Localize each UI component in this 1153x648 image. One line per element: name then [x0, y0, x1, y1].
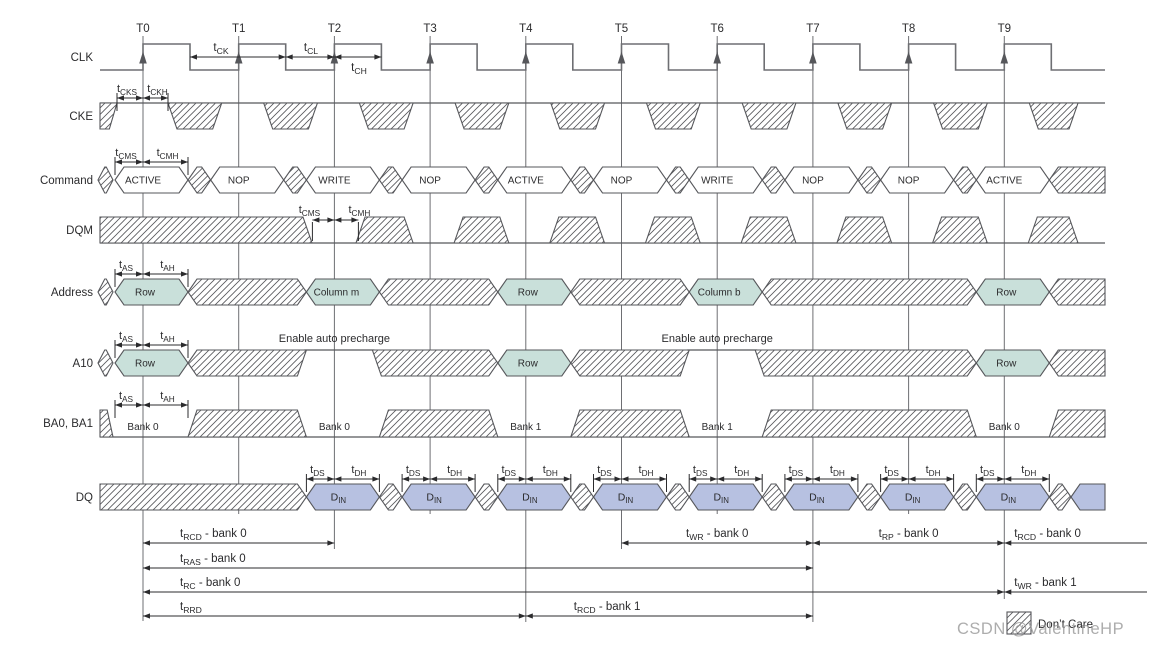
- interval-label: tWR - bank 1: [1014, 577, 1076, 591]
- sdram-write-timing-diagram: T0T1T2T3T4T5T6T7T8T9tCKtCLtCHCLKtCKStCKH…: [0, 0, 1153, 648]
- command-value: NOP: [419, 176, 441, 187]
- interval-label: tRP - bank 0: [879, 528, 939, 542]
- timing-label: tCH: [351, 62, 367, 76]
- a10-value: Row: [135, 359, 156, 370]
- signal-label-address: Address: [51, 287, 93, 299]
- hold-time-label: tAH: [160, 330, 175, 344]
- clock-tick-label: T4: [519, 23, 533, 35]
- hold-time-label: tDH: [734, 464, 749, 478]
- clock-tick-label: T7: [806, 23, 819, 35]
- hold-time-label: tAH: [160, 390, 175, 404]
- setup-time-label: tCMS: [299, 204, 321, 218]
- clock-edge-arrow: [713, 52, 721, 64]
- signal-label-a10: A10: [73, 358, 93, 370]
- clock-tick-labels: T0T1T2T3T4T5T6T7T8T9: [136, 23, 1011, 35]
- auto-precharge-note: Enable auto precharge: [662, 333, 773, 345]
- setup-time-label: tDS: [502, 464, 517, 478]
- setup-time-label: tDS: [980, 464, 995, 478]
- address-value: Row: [996, 288, 1017, 299]
- clock-edge-arrow: [1001, 52, 1009, 64]
- interval-label: tRCD - bank 0: [1014, 528, 1081, 542]
- signal-label-command: Command: [40, 175, 93, 187]
- setup-time-label: tAS: [119, 330, 134, 344]
- timing-label: tCL: [304, 42, 318, 56]
- signal-label-dqm: DQM: [66, 225, 93, 237]
- bank-value: Bank 0: [127, 422, 159, 433]
- clock-tick-label: T1: [232, 23, 245, 35]
- bottom-timing-annotations: tRCD - bank 0tRAS - bank 0tRC - bank 0tR…: [143, 528, 1147, 619]
- setup-time-label: tCKS: [117, 83, 138, 97]
- clock-tick-label: T6: [710, 23, 723, 35]
- hold-time-label: tDH: [543, 464, 558, 478]
- signal-row-a10: RowRowRowEnable auto prechargeEnable aut…: [73, 330, 1105, 376]
- hold-time-label: tDH: [830, 464, 845, 478]
- clock-tick-label: T8: [902, 23, 915, 35]
- setup-time-label: tDS: [310, 464, 325, 478]
- interval-label: tRAS - bank 0: [180, 553, 246, 567]
- signal-row-ba: Bank 0Bank 0Bank 1Bank 1Bank 0tAStAHBA0,…: [43, 390, 1105, 437]
- auto-precharge-note: Enable auto precharge: [279, 333, 390, 345]
- command-value: WRITE: [318, 176, 351, 187]
- bank-value: Bank 1: [510, 422, 542, 433]
- command-value: ACTIVE: [125, 176, 161, 187]
- signal-row-dqm: tCMStCMHDQM: [66, 204, 1105, 243]
- clock-edge-arrow: [522, 52, 530, 64]
- a10-value: Row: [518, 359, 539, 370]
- interval-label: tRC - bank 0: [180, 577, 240, 591]
- signal-label-clk: CLK: [71, 52, 94, 64]
- address-value: Column m: [314, 288, 360, 299]
- signal-label-ba: BA0, BA1: [43, 418, 93, 430]
- clock-edge-arrow: [139, 52, 147, 64]
- clock-tick-label: T0: [136, 23, 149, 35]
- command-value: NOP: [611, 176, 633, 187]
- signal-label-cke: CKE: [69, 111, 93, 123]
- hold-time-label: tDH: [926, 464, 941, 478]
- watermark-text: CSDN @ValentineHP: [957, 620, 1124, 638]
- bank-value: Bank 0: [989, 422, 1021, 433]
- signal-row-address: RowColumn mRowColumn bRowtAStAHAddress: [51, 259, 1105, 305]
- command-value: NOP: [228, 176, 250, 187]
- clock-tick-label: T3: [423, 23, 436, 35]
- hold-time-label: tDH: [1021, 464, 1036, 478]
- setup-time-label: tDS: [693, 464, 708, 478]
- setup-time-label: tDS: [597, 464, 612, 478]
- hold-time-label: tCKH: [147, 83, 168, 97]
- command-value: ACTIVE: [986, 176, 1022, 187]
- timing-diagram-canvas: T0T1T2T3T4T5T6T7T8T9tCKtCLtCHCLKtCKStCKH…: [0, 0, 1153, 648]
- setup-time-label: tDS: [884, 464, 899, 478]
- interval-label: tRCD - bank 0: [180, 528, 247, 542]
- setup-time-label: tCMS: [115, 147, 137, 161]
- address-value: Row: [135, 288, 156, 299]
- hold-time-label: tDH: [447, 464, 462, 478]
- interval-label: tWR - bank 0: [686, 528, 748, 542]
- address-value: Column b: [698, 288, 741, 299]
- interval-label: tRRD: [180, 601, 202, 615]
- signal-row-cke: tCKStCKHCKE: [69, 83, 1105, 129]
- command-value: WRITE: [701, 176, 734, 187]
- setup-time-label: tAS: [119, 390, 134, 404]
- hold-time-label: tDH: [639, 464, 654, 478]
- command-value: ACTIVE: [508, 176, 544, 187]
- bank-value: Bank 0: [319, 422, 351, 433]
- interval-label: tRCD - bank 1: [574, 601, 641, 615]
- bank-value: Bank 1: [702, 422, 734, 433]
- clock-tick-label: T9: [998, 23, 1011, 35]
- hold-time-label: tAH: [160, 259, 175, 273]
- clock-edge-arrow: [618, 52, 626, 64]
- clock-tick-label: T5: [615, 23, 628, 35]
- command-value: NOP: [802, 176, 824, 187]
- clock-edge-arrow: [426, 52, 434, 64]
- signal-row-clk: tCKtCLtCHCLK: [71, 42, 1105, 76]
- setup-time-label: tDS: [789, 464, 804, 478]
- hold-time-label: tCMH: [157, 147, 179, 161]
- setup-time-label: tDS: [406, 464, 421, 478]
- setup-time-label: tAS: [119, 259, 134, 273]
- clock-edge-arrow: [809, 52, 817, 64]
- clock-tick-label: T2: [328, 23, 341, 35]
- timing-label: tCK: [213, 42, 228, 56]
- hold-time-label: tCMH: [348, 204, 370, 218]
- signal-row-dq: DINtDStDHDINtDStDHDINtDStDHDINtDStDHDINt…: [76, 464, 1105, 510]
- command-value: NOP: [898, 176, 920, 187]
- signal-row-command: ACTIVENOPWRITENOPACTIVENOPWRITENOPNOPACT…: [40, 147, 1105, 193]
- clock-edge-arrow: [905, 52, 913, 64]
- signal-label-dq: DQ: [76, 492, 93, 504]
- hold-time-label: tDH: [351, 464, 366, 478]
- a10-value: Row: [996, 359, 1017, 370]
- watermark: CSDN @ValentineHP: [957, 620, 1124, 638]
- address-value: Row: [518, 288, 539, 299]
